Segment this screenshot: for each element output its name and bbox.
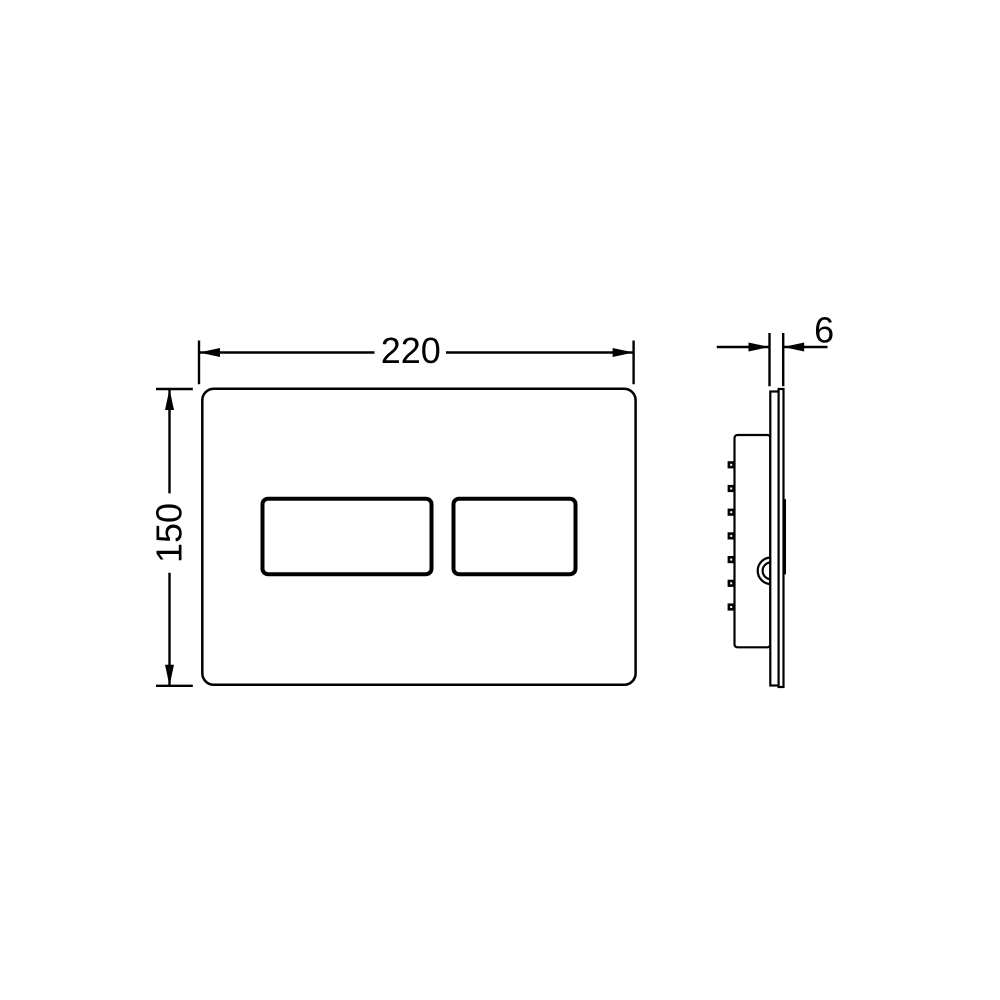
svg-text:6: 6 [814,310,834,351]
svg-text:150: 150 [148,503,189,563]
svg-text:220: 220 [381,330,441,371]
